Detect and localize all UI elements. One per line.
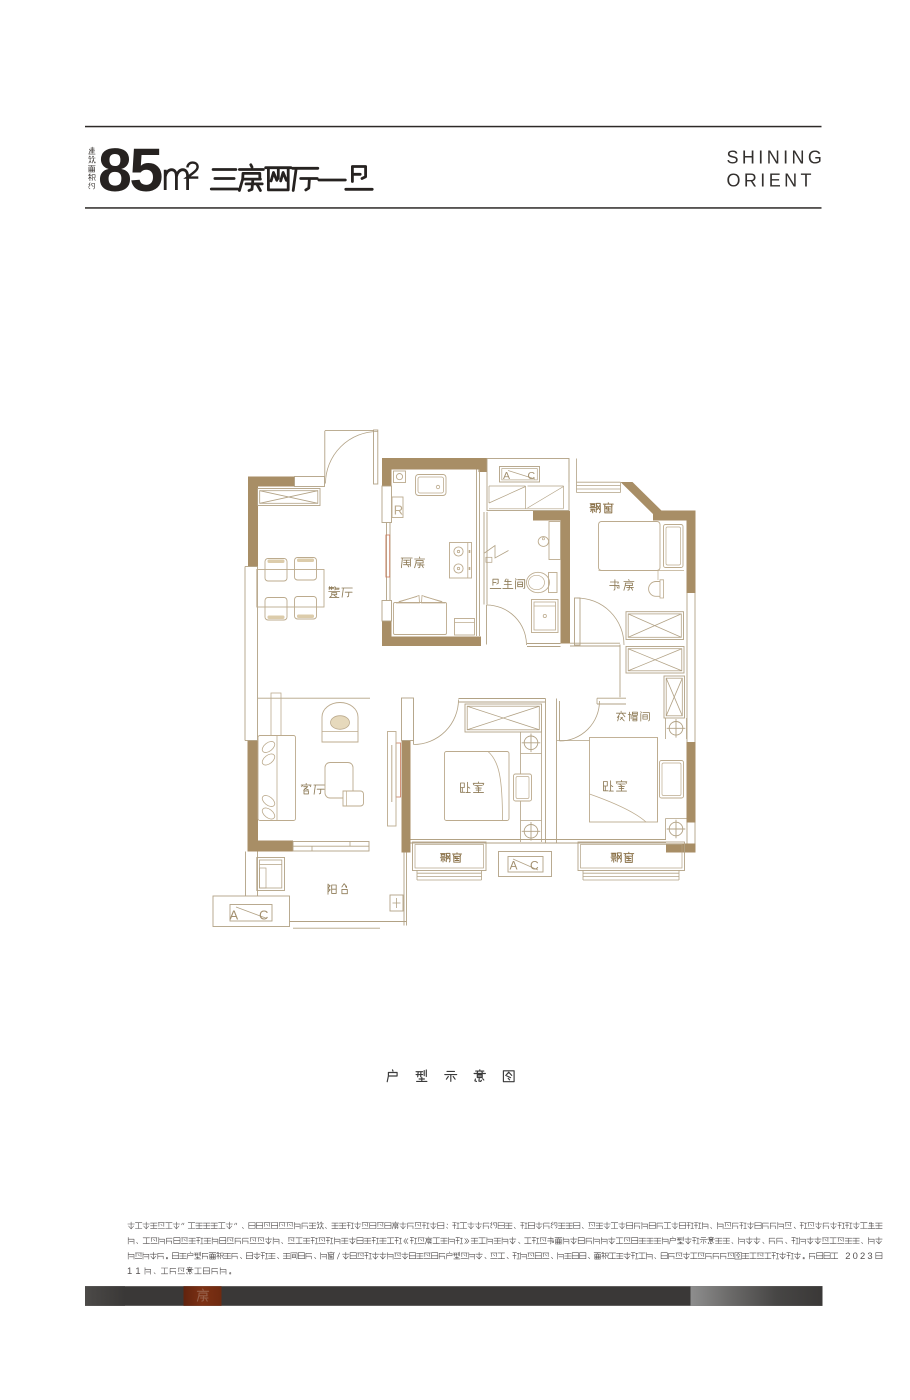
svg-text:C: C — [259, 908, 268, 923]
svg-text:C: C — [530, 859, 539, 873]
svg-text:2: 2 — [860, 1250, 865, 1261]
svg-text:0: 0 — [853, 1250, 858, 1261]
svg-text:R: R — [394, 503, 403, 518]
svg-text:85: 85 — [98, 136, 162, 204]
svg-text:ORIENT: ORIENT — [727, 171, 815, 191]
svg-text:A: A — [230, 908, 239, 923]
svg-text:1: 1 — [127, 1265, 132, 1276]
svg-text:SHINING: SHINING — [727, 147, 826, 167]
svg-text:3: 3 — [867, 1250, 872, 1261]
svg-text:A: A — [503, 470, 510, 482]
svg-text:A: A — [510, 859, 518, 873]
svg-text:2: 2 — [845, 1250, 850, 1261]
svg-text:1: 1 — [135, 1265, 140, 1276]
svg-text:C: C — [528, 470, 536, 482]
